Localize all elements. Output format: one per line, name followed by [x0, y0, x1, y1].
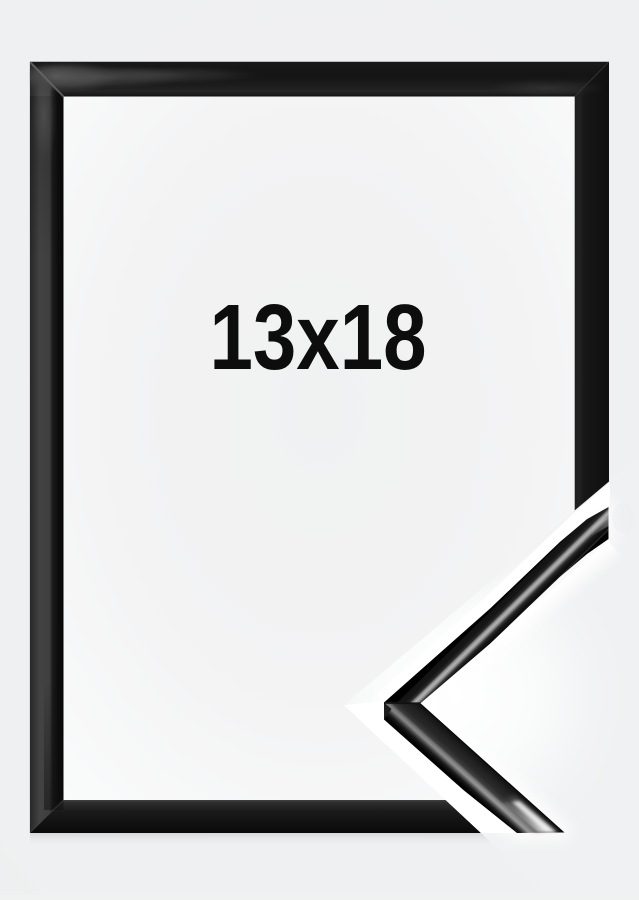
svg-text:13x18: 13x18: [209, 287, 426, 390]
